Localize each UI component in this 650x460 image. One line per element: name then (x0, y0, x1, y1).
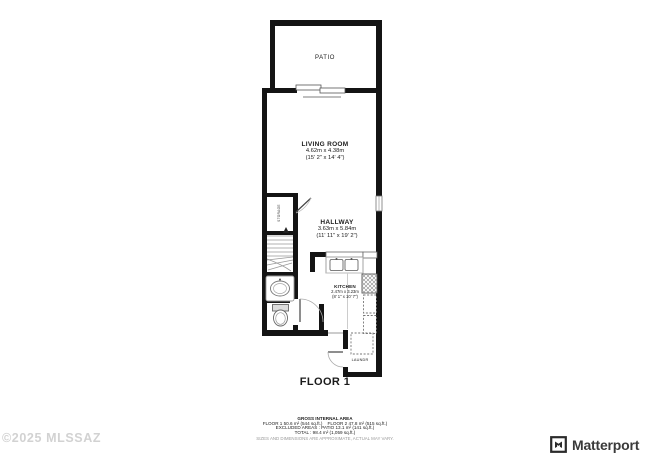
wall-bottom (262, 330, 328, 336)
wall-patio-right (376, 20, 382, 93)
wall-main-right (376, 88, 382, 377)
matterport-wordmark: Matterport (572, 437, 639, 453)
living-room-metric: 4.62m x 4.38m (302, 148, 349, 155)
wall-storage-bottom (264, 231, 296, 235)
toilet (273, 305, 289, 327)
living-room-imperial: (15' 2" x 14' 4") (302, 155, 349, 162)
hallway-window (376, 196, 382, 211)
wall-patio-left (270, 20, 275, 93)
entry-door (328, 333, 343, 367)
summary-total-area: TOTAL : 98.4 m² (1,059 sq.ft.) (256, 431, 393, 436)
wall-storage-top (262, 193, 298, 197)
room-label-storage: STORAGE (277, 204, 281, 222)
mls-watermark: ©2025 MLSSAZ (2, 431, 101, 445)
room-label-hallway: HALLWAY 3.63m x 5.84m (11' 11" x 19' 2") (316, 219, 357, 241)
room-label-kitchen: KITCHEN 2.47m x 3.23m (8' 1" x 10' 7") (331, 284, 359, 300)
floorplan-page: PATIO LIVING ROOM 4.62m x 4.38m (15' 2" … (0, 0, 650, 460)
storage-door (296, 198, 311, 213)
summary-disclaimer: SIZES AND DIMENSIONS ARE APPROXIMATE, AC… (256, 437, 393, 442)
hallway-metric: 3.63m x 5.84m (316, 226, 357, 233)
wall-mid-left (262, 88, 297, 93)
washer-outline (351, 333, 373, 354)
wall-inner-vertical-b (293, 325, 298, 330)
living-room-name: LIVING ROOM (302, 141, 349, 148)
room-label-laundry: LAUNDR (352, 358, 369, 362)
appliance-outlines (351, 295, 377, 354)
floor-title: FLOOR 1 (300, 376, 350, 388)
wall-laundry-left-a (343, 330, 348, 349)
cooktop (362, 274, 377, 293)
bathroom-sink (266, 276, 294, 301)
hallway-imperial: (11' 11" x 19' 2") (316, 233, 357, 240)
sliding-door (296, 85, 345, 97)
wall-kitchen-lower (319, 304, 324, 330)
area-summary: GROSS INTERNAL AREA FLOOR 1 50.6 m² (544… (256, 417, 393, 442)
wall-patio-top (270, 20, 381, 26)
room-label-living-room: LIVING ROOM 4.62m x 4.38m (15' 2" x 14' … (302, 141, 349, 163)
room-label-patio: PATIO (315, 55, 335, 61)
hallway-name: HALLWAY (316, 219, 357, 226)
stairs-direction-arrow (283, 227, 289, 233)
matterport-logo: Matterport (550, 436, 639, 453)
matterport-icon (550, 436, 567, 453)
wall-kitchen-left (310, 252, 315, 272)
kitchen-imperial: (8' 1" x 10' 7") (331, 294, 359, 299)
